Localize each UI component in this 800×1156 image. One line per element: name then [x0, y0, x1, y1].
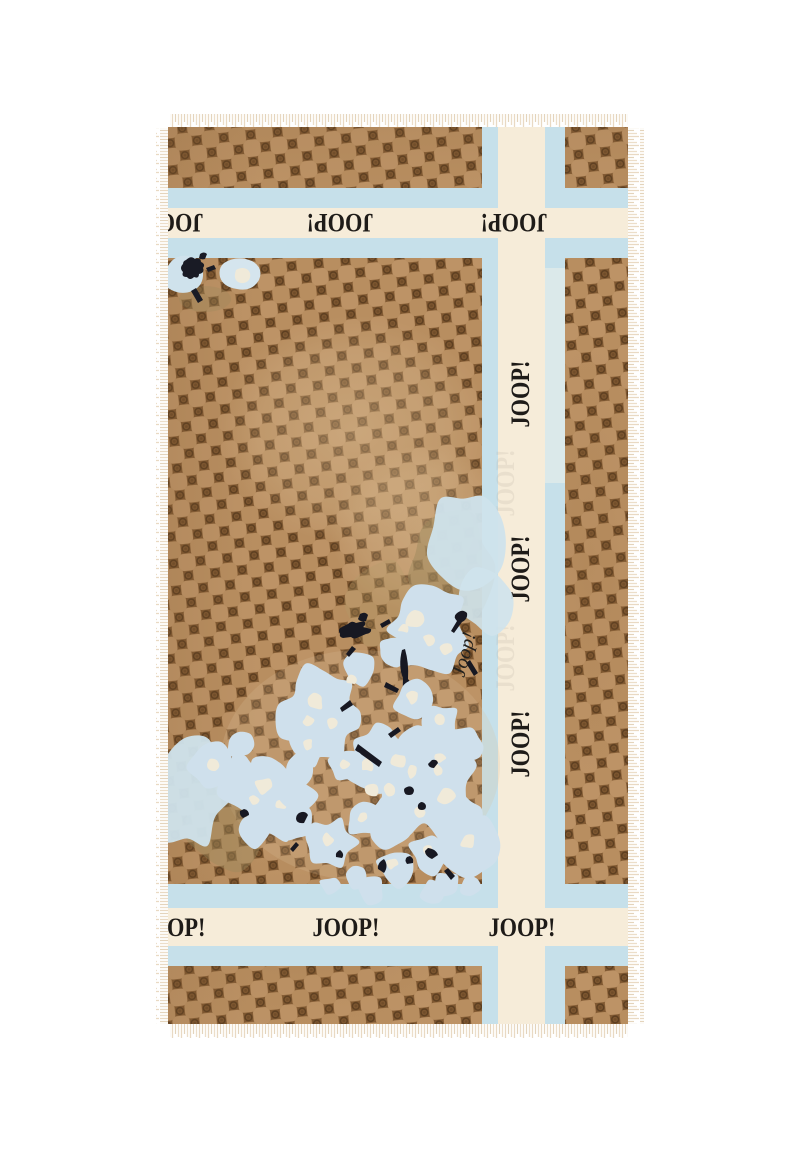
svg-text:JOOP!: JOOP!	[313, 913, 380, 942]
svg-text:JOOP!: JOOP!	[481, 208, 548, 237]
svg-text:JOOP!: JOOP!	[307, 208, 374, 237]
svg-text:JOOP!: JOOP!	[506, 361, 535, 428]
svg-text:JOOP!: JOOP!	[491, 450, 520, 517]
svg-text:JOOP!: JOOP!	[506, 711, 535, 778]
svg-text:JOOP!: JOOP!	[137, 208, 204, 237]
svg-text:JOOP!: JOOP!	[139, 913, 206, 942]
svg-text:JOOP!: JOOP!	[489, 913, 556, 942]
